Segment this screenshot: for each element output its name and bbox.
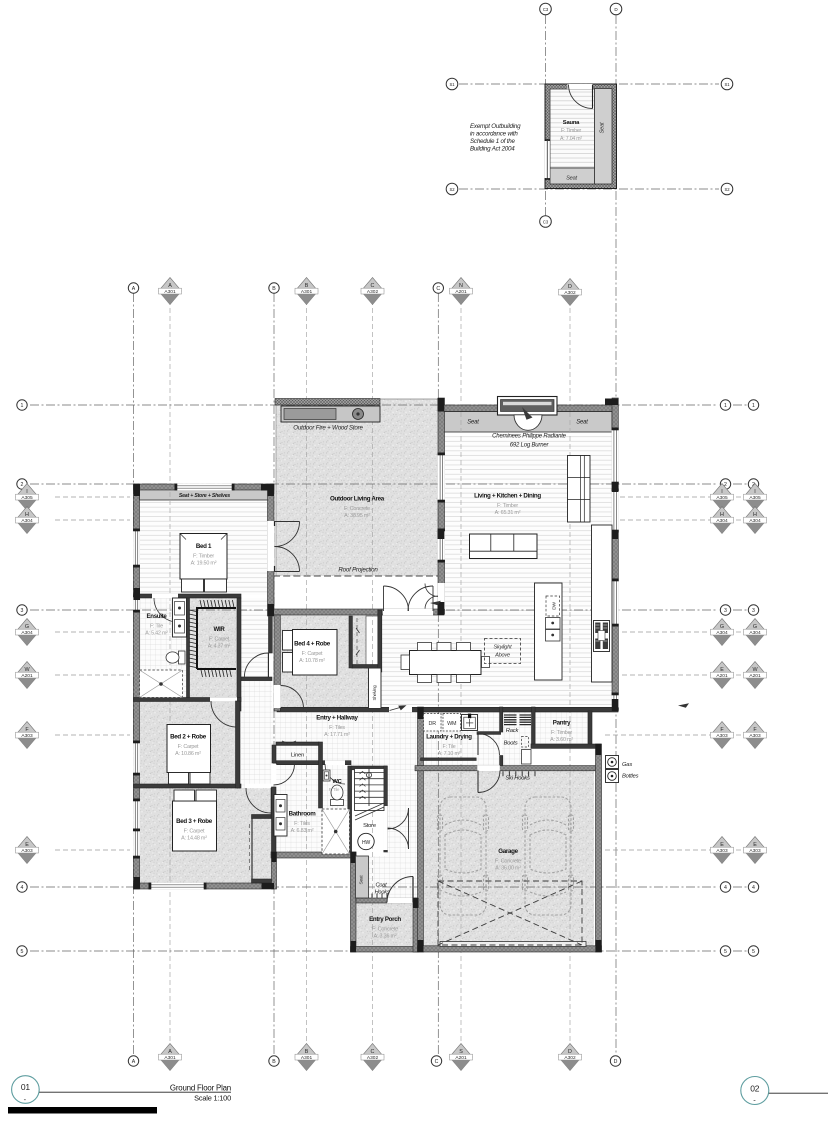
svg-text:F: Timber: F: Timber — [497, 503, 518, 509]
svg-text:Seat: Seat — [467, 420, 479, 426]
svg-text:A: 10.86 m²: A: 10.86 m² — [175, 751, 201, 757]
svg-text:Exempt Outbuilding: Exempt Outbuilding — [470, 123, 521, 130]
svg-text:C: C — [435, 1059, 439, 1065]
svg-text:Outdoor Living Area: Outdoor Living Area — [330, 496, 385, 503]
svg-text:C3: C3 — [543, 219, 549, 224]
svg-text:1: 1 — [724, 403, 727, 409]
svg-text:A305: A305 — [21, 495, 33, 501]
svg-text:B: B — [272, 286, 276, 292]
svg-text:A301: A301 — [301, 289, 313, 295]
svg-text:Roof Projection: Roof Projection — [338, 567, 378, 574]
svg-text:G: G — [720, 624, 724, 630]
svg-text:3: 3 — [752, 608, 755, 614]
svg-text:A: 5.42 m²: A: 5.42 m² — [145, 631, 168, 637]
svg-text:4: 4 — [21, 885, 24, 891]
svg-text:A301: A301 — [301, 1055, 313, 1061]
svg-text:C3: C3 — [543, 7, 549, 12]
svg-text:Laundry + Drying: Laundry + Drying — [426, 734, 472, 741]
svg-text:B: B — [305, 283, 309, 289]
svg-text:Entry Porch: Entry Porch — [369, 916, 401, 923]
svg-text:A304: A304 — [716, 630, 728, 636]
svg-text:Linen: Linen — [291, 753, 304, 759]
svg-text:B: B — [272, 1059, 276, 1065]
svg-text:DW: DW — [552, 602, 558, 610]
svg-text:4: 4 — [752, 885, 755, 891]
svg-text:E: E — [720, 667, 724, 673]
svg-text:G: G — [753, 624, 757, 630]
svg-text:A201: A201 — [455, 1055, 467, 1061]
svg-text:D: D — [568, 284, 572, 290]
svg-text:HW: HW — [362, 840, 370, 846]
svg-text:A304: A304 — [716, 518, 728, 524]
svg-text:Bed 2 + Robe: Bed 2 + Robe — [170, 734, 207, 741]
svg-text:WC: WC — [332, 779, 342, 785]
svg-text:Seat: Seat — [576, 420, 588, 426]
svg-text:Ski Hooks: Ski Hooks — [505, 776, 530, 782]
svg-text:A: A — [132, 1059, 136, 1065]
svg-text:Rack: Rack — [506, 728, 520, 734]
svg-text:A: 4.37 m²: A: 4.37 m² — [208, 644, 231, 650]
svg-text:3: 3 — [724, 608, 727, 614]
svg-text:A: 7.04 m²: A: 7.04 m² — [560, 136, 582, 142]
svg-text:A304: A304 — [749, 518, 761, 524]
svg-text:Boots: Boots — [504, 741, 518, 747]
svg-text:F: Concrete: F: Concrete — [495, 859, 521, 865]
svg-text:C: C — [371, 1049, 375, 1055]
svg-text:A: 14.48 m²: A: 14.48 m² — [181, 836, 207, 842]
svg-text:5: 5 — [21, 949, 24, 955]
svg-text:A302: A302 — [564, 290, 576, 296]
svg-text:D: D — [614, 1059, 618, 1065]
svg-text:E: E — [753, 842, 757, 848]
svg-text:F: Carpet: F: Carpet — [178, 744, 199, 750]
svg-text:Outdoor Fire + Wood Store: Outdoor Fire + Wood Store — [293, 425, 363, 432]
svg-text:C: C — [436, 286, 440, 292]
svg-text:Bottles: Bottles — [622, 774, 639, 780]
svg-text:S2: S2 — [449, 187, 455, 192]
svg-text:E: E — [25, 842, 29, 848]
svg-text:Hooks: Hooks — [375, 890, 390, 896]
svg-text:A201: A201 — [21, 673, 33, 679]
svg-text:S: S — [459, 1049, 463, 1055]
svg-text:01: 01 — [21, 1082, 31, 1092]
svg-text:G: G — [25, 624, 29, 630]
svg-text:S2: S2 — [724, 187, 730, 192]
svg-text:Cheminees Philippe Radiante: Cheminees Philippe Radiante — [492, 434, 567, 440]
svg-text:3: 3 — [21, 608, 24, 614]
svg-text:A: 3.60 m²: A: 3.60 m² — [550, 737, 573, 743]
svg-text:F: Tiles: F: Tiles — [329, 725, 345, 731]
svg-text:F: Timber: F: Timber — [193, 554, 214, 560]
svg-text:Ground Floor Plan: Ground Floor Plan — [170, 1084, 231, 1093]
svg-text:Ensuite: Ensuite — [147, 613, 168, 620]
svg-text:A303: A303 — [716, 733, 728, 739]
svg-text:5: 5 — [752, 949, 755, 955]
svg-text:DR: DR — [429, 721, 437, 727]
svg-text:A303: A303 — [716, 848, 728, 854]
svg-text:F: Carpet: F: Carpet — [184, 829, 205, 835]
svg-text:Shelving: Shelving — [372, 685, 377, 701]
svg-text:Store: Store — [363, 823, 376, 829]
svg-text:F: Concrete: F: Concrete — [344, 506, 370, 512]
svg-text:A301: A301 — [164, 1055, 176, 1061]
svg-text:A302: A302 — [367, 1055, 379, 1061]
svg-text:in accordance with: in accordance with — [470, 131, 518, 138]
svg-text:A303: A303 — [21, 733, 33, 739]
svg-text:A: 65.31 m²: A: 65.31 m² — [495, 510, 521, 516]
svg-text:I: I — [26, 489, 28, 495]
svg-text:S1: S1 — [724, 82, 730, 87]
svg-text:A301: A301 — [164, 289, 176, 295]
svg-text:F: Timber: F: Timber — [551, 730, 572, 736]
svg-text:A: 17.71 m²: A: 17.71 m² — [324, 732, 350, 738]
svg-text:Seat + Store + Shelves: Seat + Store + Shelves — [179, 493, 231, 499]
svg-text:A: A — [132, 286, 136, 292]
svg-text:A: A — [168, 1049, 172, 1055]
svg-text:B: B — [305, 1049, 309, 1055]
svg-text:A: A — [168, 283, 172, 289]
svg-text:A201: A201 — [455, 289, 467, 295]
svg-text:S1: S1 — [449, 82, 455, 87]
svg-text:Bed 1: Bed 1 — [196, 543, 212, 550]
svg-text:Schedule 1 of the: Schedule 1 of the — [470, 138, 516, 145]
svg-text:Gas: Gas — [622, 762, 632, 768]
svg-text:1: 1 — [21, 403, 24, 409]
svg-text:4: 4 — [724, 885, 727, 891]
svg-text:A: 3.36 m²: A: 3.36 m² — [374, 934, 397, 940]
svg-text:A305: A305 — [749, 495, 761, 501]
svg-text:A305: A305 — [716, 495, 728, 501]
svg-text:A303: A303 — [749, 733, 761, 739]
svg-text:H: H — [720, 512, 724, 518]
svg-text:A: 10.78 m²: A: 10.78 m² — [299, 658, 325, 664]
svg-text:1: 1 — [752, 403, 755, 409]
svg-text:A302: A302 — [564, 1055, 576, 1061]
svg-text:F: Concrete: F: Concrete — [372, 927, 398, 933]
svg-text:F: Tile: F: Tile — [442, 744, 455, 750]
svg-text:Seat: Seat — [599, 122, 605, 133]
svg-text:E: E — [720, 842, 724, 848]
svg-text:Seat: Seat — [359, 875, 365, 885]
svg-text:A304: A304 — [21, 518, 33, 524]
svg-text:A: 38.95 m²: A: 38.95 m² — [344, 513, 370, 519]
svg-text:WIR: WIR — [214, 626, 226, 633]
svg-text:692 Log Burner: 692 Log Burner — [510, 443, 550, 449]
svg-text:I: I — [721, 489, 723, 495]
svg-text:Bed 3 + Robe: Bed 3 + Robe — [176, 818, 213, 825]
svg-text:Above: Above — [494, 653, 510, 659]
svg-text:F: Tiles: F: Tiles — [294, 821, 310, 827]
svg-text:A302: A302 — [367, 289, 379, 295]
svg-text:Entry + Hallway: Entry + Hallway — [316, 715, 358, 722]
svg-text:Garage: Garage — [498, 848, 518, 855]
svg-text:F: Tile: F: Tile — [329, 787, 340, 792]
svg-text:H: H — [25, 512, 29, 518]
svg-text:H: H — [753, 512, 757, 518]
svg-text:Bed 4 + Robe: Bed 4 + Robe — [294, 641, 331, 648]
svg-text:WM: WM — [447, 721, 457, 727]
svg-text:F: Tile: F: Tile — [150, 624, 163, 630]
svg-text:Coat: Coat — [375, 883, 387, 889]
svg-text:A303: A303 — [749, 848, 761, 854]
svg-text:A304: A304 — [749, 630, 761, 636]
svg-text:A: 19.50 m²: A: 19.50 m² — [191, 561, 217, 567]
svg-text:Bathroom: Bathroom — [289, 811, 317, 818]
svg-text:I: I — [754, 489, 756, 495]
svg-text:N: N — [459, 283, 463, 289]
svg-text:F: Carpet: F: Carpet — [302, 651, 323, 657]
svg-text:F: Timber: F: Timber — [561, 128, 582, 134]
svg-text:A303: A303 — [21, 848, 33, 854]
svg-text:Building Act 2004: Building Act 2004 — [470, 146, 515, 153]
svg-text:A304: A304 — [21, 630, 33, 636]
svg-text:02: 02 — [750, 1084, 760, 1094]
svg-text:A201: A201 — [716, 673, 728, 679]
svg-text:Living + Kitchen + Dining: Living + Kitchen + Dining — [474, 493, 541, 500]
svg-text:2: 2 — [21, 482, 24, 488]
svg-text:5: 5 — [724, 949, 727, 955]
svg-text:A: 36.00 m²: A: 36.00 m² — [495, 866, 521, 872]
svg-text:D: D — [568, 1049, 572, 1055]
svg-text:Skylight: Skylight — [494, 645, 513, 651]
svg-text:C: C — [371, 283, 375, 289]
svg-text:A: 7.10 m²: A: 7.10 m² — [438, 751, 461, 757]
svg-text:Seat: Seat — [566, 176, 577, 182]
svg-text:Sauna: Sauna — [563, 120, 580, 126]
svg-text:A: 6.83 m²: A: 6.83 m² — [291, 828, 314, 834]
svg-text:Scale 1:100: Scale 1:100 — [194, 1094, 231, 1103]
svg-text:Pantry: Pantry — [553, 720, 571, 727]
svg-text:F: Carpet: F: Carpet — [209, 637, 230, 643]
svg-text:A201: A201 — [749, 673, 761, 679]
